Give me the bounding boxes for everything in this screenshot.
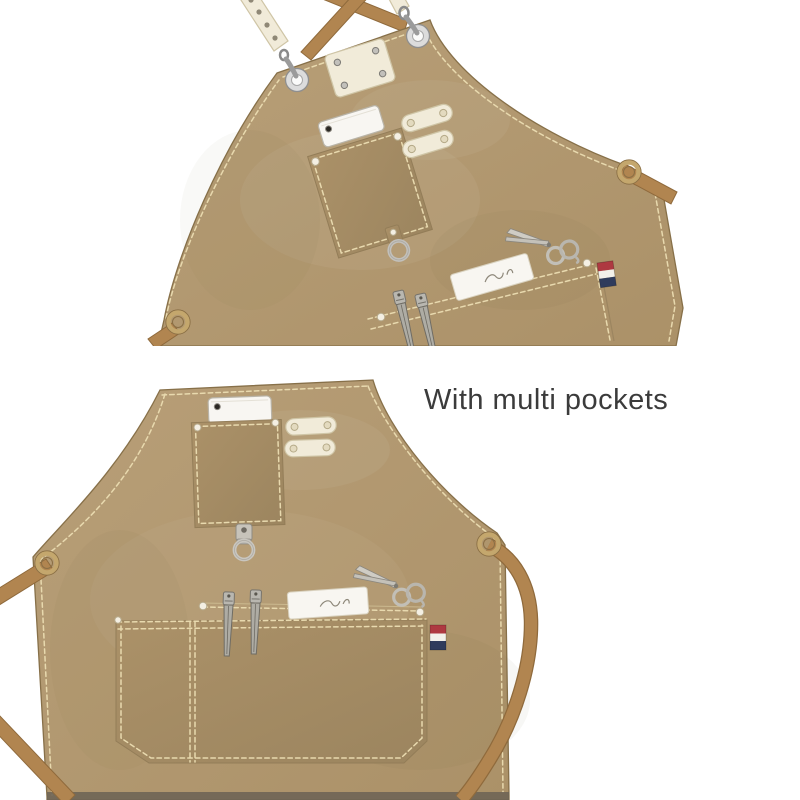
flag-tag-icon	[597, 261, 616, 288]
hem-shadow	[47, 792, 509, 800]
grommet-icon	[286, 69, 309, 92]
apron-illustration	[0, 0, 800, 800]
label-card-icon	[287, 587, 369, 620]
top-apron-photo	[148, 0, 683, 358]
snap-tab	[285, 416, 336, 435]
white-shoulder-strap-icon	[239, 0, 288, 51]
chest-pocket	[191, 419, 285, 528]
large-front-pocket	[115, 617, 427, 763]
caption: With multi pockets	[424, 384, 668, 417]
snap-tab	[285, 439, 336, 457]
product-image: With multi pockets	[0, 0, 800, 800]
bottom-apron-photo	[0, 380, 531, 800]
flag-tag-icon	[430, 625, 446, 650]
grommet-icon	[407, 25, 430, 48]
